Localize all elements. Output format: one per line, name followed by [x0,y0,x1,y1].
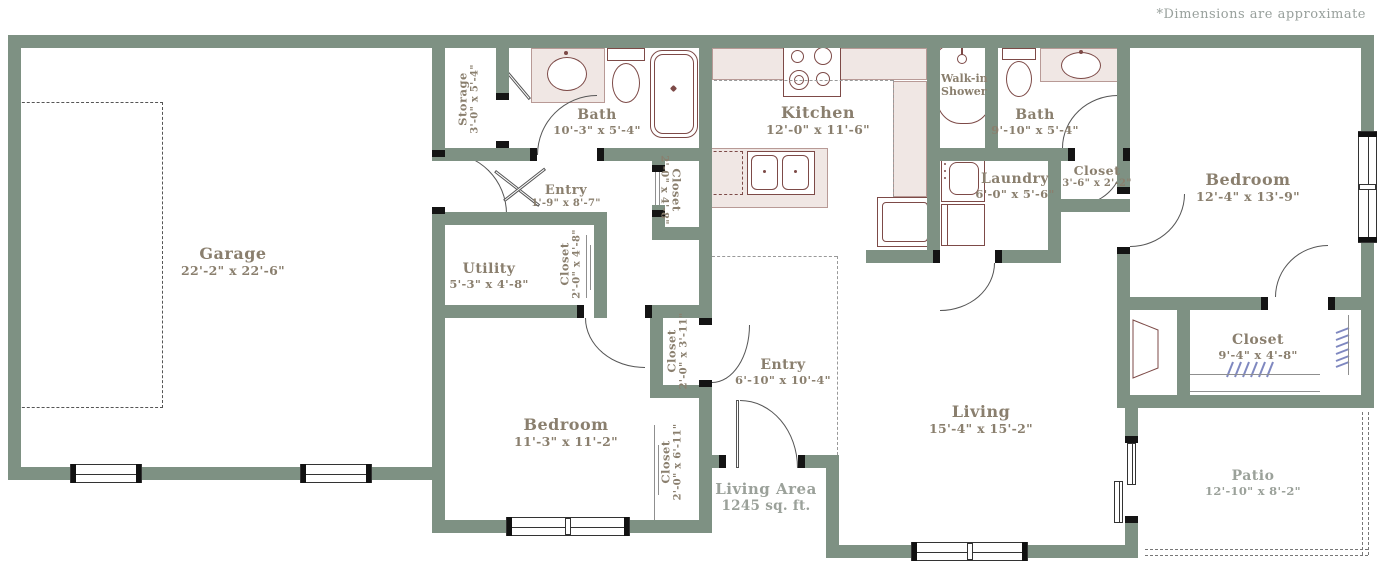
door-jamb-cap [699,318,712,325]
closet-rod-line [586,235,587,298]
ceiling-dash-line [1145,549,1368,550]
wall [826,455,839,558]
room-label-patio: Patio 12'-10" x 8'-2" [1205,468,1301,498]
room-label-closet-b: Closet 2'-0" x 4'-8" [558,229,583,299]
room-label-entry-main: Entry 6'-10" x 10'-4" [735,357,831,387]
wall [995,250,1048,263]
room-label-closet-36: Closet 3'-6" x 2'-2" [1062,163,1132,189]
wall [432,305,583,318]
room-label-walkin-shower: Walk-in Shower [941,72,999,98]
window [1358,131,1377,243]
wall [1117,395,1374,408]
room-dims: 2'-0" x 4'-8" [572,229,583,299]
door-jamb-cap [645,305,652,318]
wall [1048,212,1061,263]
wall [1125,523,1138,558]
room-dims: 9'-10" x 5'-4" [991,123,1079,137]
closet-rod-line [654,425,655,520]
door-jamb-cap [432,207,445,214]
window [911,542,1028,561]
room-label-closet-c: Closet 2'-0" x 3'-11" [665,313,690,390]
door-jamb-cap [496,93,509,100]
wall [8,35,1374,48]
wall [1177,310,1190,395]
window [300,464,372,483]
room-dims: 12'-0" x 11'-6" [766,122,870,137]
room-name: Bedroom [1196,170,1300,189]
wall [1117,247,1130,310]
room-label-closet-d: Closet 2'-0" x 6'-11" [659,424,684,501]
room-dims: 5'-3" x 4'-8" [449,277,528,291]
room-dims: 6'-0" x 5'-6" [975,187,1054,201]
room-dims: 12'-10" x 8'-2" [1205,484,1301,498]
room-dims: 2'-0" x 4'-8" [659,155,670,225]
room-label-garage: Garage 22'-2" x 22'-6" [181,244,285,278]
room-dims: 2'-0" x 6'-11" [673,424,684,501]
wall [699,385,712,533]
room-name: Closet [1062,163,1132,178]
room-name: Bath [991,107,1079,123]
room-dims: 3'-0" x 5'-4" [470,64,481,134]
door-jamb-cap [699,380,712,387]
ceiling-dash-line [714,80,893,81]
room-name: Entry [735,357,831,373]
door-swing-arc [1130,194,1185,247]
room-label-closet-a: Closet 2'-0" x 4'-8" [659,155,684,225]
room-label-bath1: Bath 10'-3" x 5'-4" [553,107,641,137]
wall [1125,408,1138,436]
door-jamb-cap [995,250,1002,263]
door-swing-arc [740,400,798,468]
room-label-living: Living 15'-4" x 15'-2" [929,402,1033,436]
garage-door-outline [12,102,163,408]
area-label: Living Area [715,480,817,498]
room-label-bedroom1: Bedroom 12'-4" x 13'-9" [1196,170,1300,204]
room-label-bath2: Bath 9'-10" x 5'-4" [991,107,1079,137]
wall [432,212,607,225]
room-label-utility: Utility 5'-3" x 4'-8" [449,261,528,291]
room-name: Closet [670,155,684,225]
wall [496,48,509,93]
area-value: 1245 sq. ft. [715,498,817,514]
room-dims: 3'-6" x 2'-2" [1062,178,1132,189]
room-name: Closet [558,229,572,299]
door-jamb-cap [1123,148,1130,161]
room-name: Closet [659,424,673,501]
room-dims: 9'-4" x 4'-8" [1218,348,1297,362]
room-name: Bedroom [514,415,618,434]
living-area-label: Living Area 1245 sq. ft. [715,480,817,514]
walls-layer [0,0,1382,582]
door-jamb-cap [530,148,537,161]
room-name: Closet [665,313,679,390]
room-name: Utility [449,261,528,277]
window [70,464,142,483]
wall [1130,297,1268,310]
door-jamb-cap [1068,148,1075,161]
room-label-entry-hall: Entry 1'-9" x 8'-7" [531,183,601,209]
door-jamb-cap [1117,247,1130,254]
sliding-door [1127,443,1136,485]
door-jamb-cap [597,148,604,161]
room-name: Storage [456,64,470,134]
room-name: Patio [1205,468,1301,484]
room-name: Entry [531,183,601,198]
door-jamb-cap [432,150,445,157]
door-swing-arc [940,263,995,311]
closet-rod-line [590,245,591,290]
wall [8,35,21,480]
wall [594,212,607,318]
sliding-door [1114,481,1123,523]
room-dims: 15'-4" x 15'-2" [929,421,1033,436]
door-jamb-cap [719,455,726,468]
room-dims: 10'-3" x 5'-4" [553,123,641,137]
room-name: Closet [1218,332,1297,348]
window [506,517,630,536]
room-dims: 11'-3" x 11'-2" [514,434,618,449]
ceiling-dash-line [1362,412,1363,555]
wall [927,148,1075,161]
room-label-laundry: Laundry 6'-0" x 5'-6" [975,171,1054,201]
wall [1117,310,1130,408]
floor-plan: *Dimensions are approximate [0,0,1382,582]
room-name: Garage [181,244,285,263]
wall [432,214,445,520]
door-swing-arc [445,152,507,214]
wall [1048,199,1130,212]
room-dims: 2'-0" x 3'-11" [679,313,690,390]
wall [432,48,445,150]
ceiling-dash-line [837,256,838,455]
room-dims: 22'-2" x 22'-6" [181,263,285,278]
room-dims: 1'-9" x 8'-7" [531,198,601,209]
room-name: Kitchen [766,103,870,122]
ceiling-dash-line [1368,412,1369,555]
room-dims: 12'-4" x 13'-9" [1196,189,1300,204]
ceiling-dash-line [1145,555,1368,556]
closet-rod-line [1348,315,1349,375]
room-name: Bath [553,107,641,123]
door-jamb-cap [1328,297,1335,310]
closet-rod-line [1188,374,1320,375]
ceiling-dash-line [712,256,837,257]
ceiling-dash-line [893,80,894,197]
closet-rod-line [1188,391,1320,392]
wall [866,250,940,263]
room-label-storage: Storage 3'-0" x 5'-4" [456,64,481,134]
room-dims: 6'-10" x 10'-4" [735,373,831,387]
door-jamb-cap [1125,436,1138,443]
door-jamb-cap [496,141,509,148]
door-leaf [736,400,739,468]
door-jamb-cap [577,305,584,318]
door-jamb-cap [1125,516,1138,523]
room-label-closet-94: Closet 9'-4" x 4'-8" [1218,332,1297,362]
door-jamb-cap [798,455,805,468]
room-label-kitchen: Kitchen 12'-0" x 11'-6" [766,103,870,137]
door-jamb-cap [933,250,940,263]
wall [699,35,712,323]
door-swing-arc [585,318,645,368]
door-swing-arc [1275,245,1328,297]
room-name: Laundry [975,171,1054,187]
room-label-bedroom2: Bedroom 11'-3" x 11'-2" [514,415,618,449]
room-name: Walk-in Shower [941,72,999,98]
door-jamb-cap [1261,297,1268,310]
room-name: Living [929,402,1033,421]
